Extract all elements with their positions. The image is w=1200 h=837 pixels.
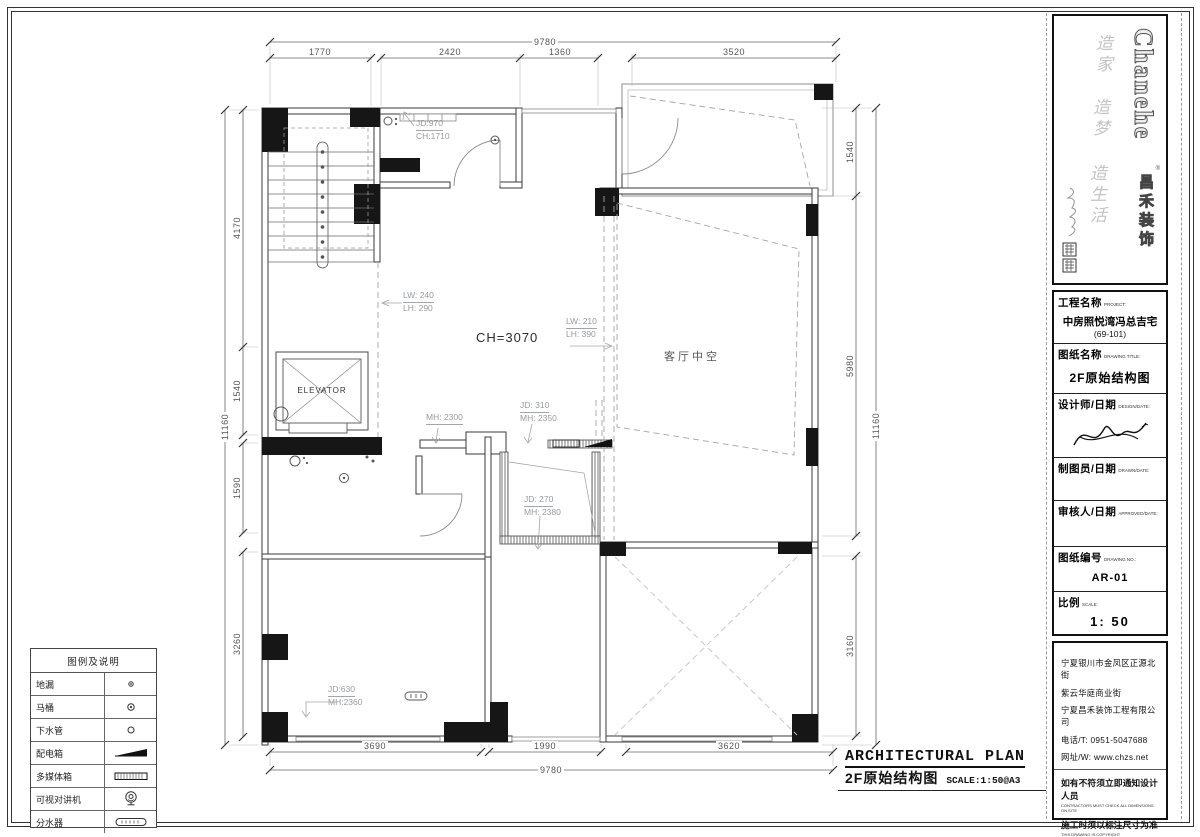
dim-top-seg4: 3520 — [721, 47, 747, 57]
dim-right-seg3: 3160 — [845, 633, 855, 659]
video-intercom-icon — [111, 790, 151, 808]
legend-table: 图例及说明 地漏 马桶 下水管 配电箱 多媒体箱 可视对讲机 分水器 — [30, 648, 157, 828]
legend-row: 分水器 — [31, 811, 156, 833]
title-block: 工程名称PROJECT: 中房照悦湾冯总吉宅 (69-101) 图纸名称DRAW… — [1052, 290, 1168, 636]
annotation-mh2300: MH: 2300 — [426, 412, 463, 425]
toilet-icon — [111, 699, 151, 715]
company-divider — [1054, 769, 1166, 770]
seal-stamps — [1062, 242, 1092, 276]
note-2: 施工时须以标注尺寸为准 — [1061, 818, 1159, 831]
floor-drain-icon — [111, 676, 151, 692]
dim-left-seg3: 1590 — [232, 475, 242, 501]
dim-bottom-seg3: 3620 — [716, 741, 742, 751]
ceiling-height-label: CH=3070 — [476, 330, 538, 345]
scale-value: 1: 50 — [1090, 614, 1130, 629]
balcony-outline — [622, 84, 833, 196]
approver-block: 审核人/日期APPROVED/DATE: — [1054, 501, 1166, 546]
annotation-lw240: LW: 240LH: 290 — [403, 290, 434, 314]
sheet-subtitle-row: 2F原始结构图 SCALE:1:50@A3 — [845, 768, 1020, 788]
dim-bottom-seg2: 1990 — [532, 741, 558, 751]
drawing-no-block: 图纸编号DRAWING NO.: AR-01 — [1054, 547, 1166, 592]
multimedia-box-symbol — [553, 440, 579, 447]
company-name: 宁夏昌禾装饰工程有限公司 — [1061, 704, 1159, 728]
dim-right-seg2: 5980 — [845, 353, 855, 379]
calligraphy-signature — [1064, 184, 1086, 239]
dim-right-overall: 11160 — [871, 411, 881, 441]
logo-box: Chanehe ® 昌禾装饰 造家 造梦 造生活 — [1052, 14, 1168, 285]
water-manifold-icon — [111, 814, 151, 830]
legend-row: 多媒体箱 — [31, 765, 156, 788]
scale-block: 比例SCALE: 1: 50 — [1054, 592, 1166, 634]
annotation-jd630: JD:630MH:2360 — [328, 684, 363, 708]
legend-row: 马桶 — [31, 696, 156, 719]
legend-row: 下水管 — [31, 719, 156, 742]
dim-left-seg2: 1540 — [232, 378, 242, 404]
sheet-scale-note: SCALE:1:50@A3 — [946, 775, 1020, 786]
slogan-1: 造家 — [1090, 34, 1115, 76]
dim-right-seg1: 1540 — [845, 139, 855, 165]
dim-bottom-overall: 9780 — [538, 765, 564, 775]
architectural-drawing-sheet: { "meta": { "sheet_title": "ARCHITECTURA… — [0, 0, 1200, 833]
footer-rule — [838, 790, 1046, 791]
drawing-number: AR-01 — [1092, 572, 1129, 584]
legend-row: 配电箱 — [31, 742, 156, 765]
dim-left-overall: 11160 — [220, 412, 230, 442]
project-name: 中房照悦湾冯总吉宅 — [1063, 314, 1158, 329]
floor-plan-drawing — [0, 0, 1200, 833]
dim-top-seg1: 1770 — [307, 47, 333, 57]
project-number: (69-101) — [1094, 329, 1126, 339]
company-phone: 电话/T: 0951-5047688 — [1061, 734, 1159, 746]
dim-top-overall: 9780 — [532, 37, 558, 47]
legend-row: 地漏 — [31, 673, 156, 696]
brand-logo-en: Chanehe — [1128, 28, 1158, 140]
living-void-label: 客厅中空 — [664, 348, 720, 364]
registered-mark: ® — [1156, 166, 1160, 172]
note-2-en: THIS DRAWING IS COPYRIGHT — [1061, 832, 1159, 837]
slogan-3: 造生活 — [1084, 164, 1109, 227]
dim-left-seg4: 3260 — [232, 631, 242, 657]
sheet-subtitle: 2F原始结构图 — [845, 768, 938, 788]
drawing-title-block: 图纸名称DRAWING TITLE: 2F原始结构图 — [1054, 344, 1166, 394]
annotation-lw210: LW: 210LH: 390 — [566, 316, 597, 340]
dim-top-seg2: 2420 — [437, 47, 463, 57]
note-1-en: CONTRACTORS MUST CHECK ALL DIMENSIONS ON… — [1061, 803, 1159, 813]
elevator-label: ELEVATOR — [297, 386, 346, 395]
slogan-2: 造梦 — [1087, 98, 1112, 140]
company-web: 网址/W: www.chzs.net — [1061, 751, 1159, 763]
distribution-box-icon — [111, 745, 151, 761]
designer-signature — [1068, 417, 1152, 453]
water-manifold-symbol — [405, 692, 427, 700]
door-swings — [420, 118, 678, 538]
annotation-jd270: JD: 270MH: 2380 — [524, 494, 561, 518]
drawing-title: 2F原始结构图 — [1069, 369, 1150, 386]
designer-block: 设计师/日期DESIGN/DATE: — [1054, 394, 1166, 458]
legend-title: 图例及说明 — [31, 649, 156, 673]
multimedia-box-icon — [111, 768, 151, 784]
company-address-1: 宁夏银川市金凤区正源北街 — [1061, 657, 1159, 681]
annotation-jd310: JD: 310MH: 2350 — [520, 400, 557, 424]
hatched-walls — [500, 440, 612, 544]
note-1: 如有不符须立即通知设计人员 — [1061, 776, 1159, 802]
dim-bottom-seg1: 3690 — [362, 741, 388, 751]
sheet-title: ARCHITECTURAL PLAN — [845, 748, 1025, 768]
legend-row: 可视对讲机 — [31, 788, 156, 811]
company-box: 宁夏银川市金凤区正源北街 紫云华庭商业街 宁夏昌禾装饰工程有限公司 电话/T: … — [1052, 641, 1168, 820]
company-address-2: 紫云华庭商业街 — [1061, 687, 1159, 699]
annotation-jd970: JD:970CH:1710 — [416, 118, 450, 142]
brand-logo-cn: 昌禾装饰 — [1135, 174, 1156, 250]
project-block: 工程名称PROJECT: 中房照悦湾冯总吉宅 (69-101) — [1054, 292, 1166, 344]
wall-mounted-boxes — [405, 439, 612, 700]
dim-left-seg1: 4170 — [232, 215, 242, 241]
drafter-block: 制图员/日期DRAWN/DATE: — [1054, 458, 1166, 501]
drain-pipe-icon — [111, 722, 151, 738]
dim-top-seg3: 1360 — [547, 47, 573, 57]
